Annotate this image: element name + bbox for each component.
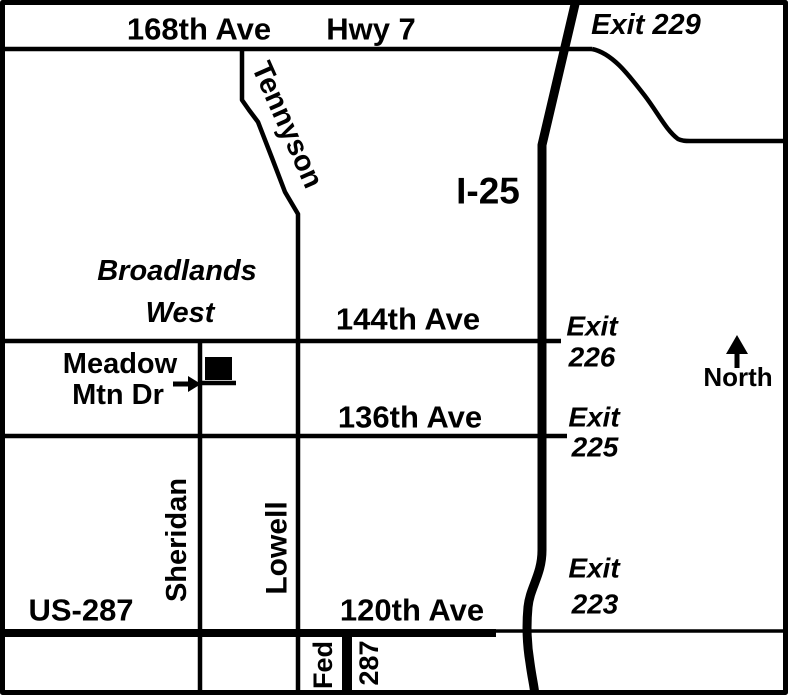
label-136th-ave: 136th Ave <box>338 400 482 435</box>
label-exit-225-word: Exit <box>568 402 621 433</box>
label-broadlands-west: West <box>146 297 216 329</box>
label-sheridan: Sheridan <box>161 478 193 602</box>
road-exit229-ramp <box>592 49 785 141</box>
label-exit-229: Exit 229 <box>591 9 701 41</box>
label-exit-226-word: Exit <box>566 311 619 342</box>
label-hwy-7: Hwy 7 <box>326 12 416 47</box>
location-marker-square <box>205 357 232 380</box>
label-287: 287 <box>354 640 384 685</box>
label-144th-ave: 144th Ave <box>336 302 480 337</box>
label-us-287: US-287 <box>28 593 133 628</box>
label-fed: Fed <box>308 641 338 689</box>
label-meadow: Meadow <box>63 348 178 380</box>
road-map: 168th Ave Hwy 7 Exit 229 Tennyson I-25 B… <box>0 0 788 695</box>
label-i25: I-25 <box>456 171 520 212</box>
label-120th-ave: 120th Ave <box>340 593 484 628</box>
north-arrow-icon <box>726 335 748 354</box>
label-north: North <box>703 362 772 392</box>
label-exit-223-word: Exit <box>568 553 621 584</box>
label-broadlands: Broadlands <box>97 255 257 287</box>
label-exit-225-number: 225 <box>571 432 619 463</box>
label-exit-226-number: 226 <box>568 342 616 373</box>
label-mtn-dr: Mtn Dr <box>72 379 164 411</box>
label-exit-223-number: 223 <box>571 589 619 620</box>
label-168th-ave: 168th Ave <box>127 12 271 47</box>
label-lowell: Lowell <box>261 501 294 594</box>
